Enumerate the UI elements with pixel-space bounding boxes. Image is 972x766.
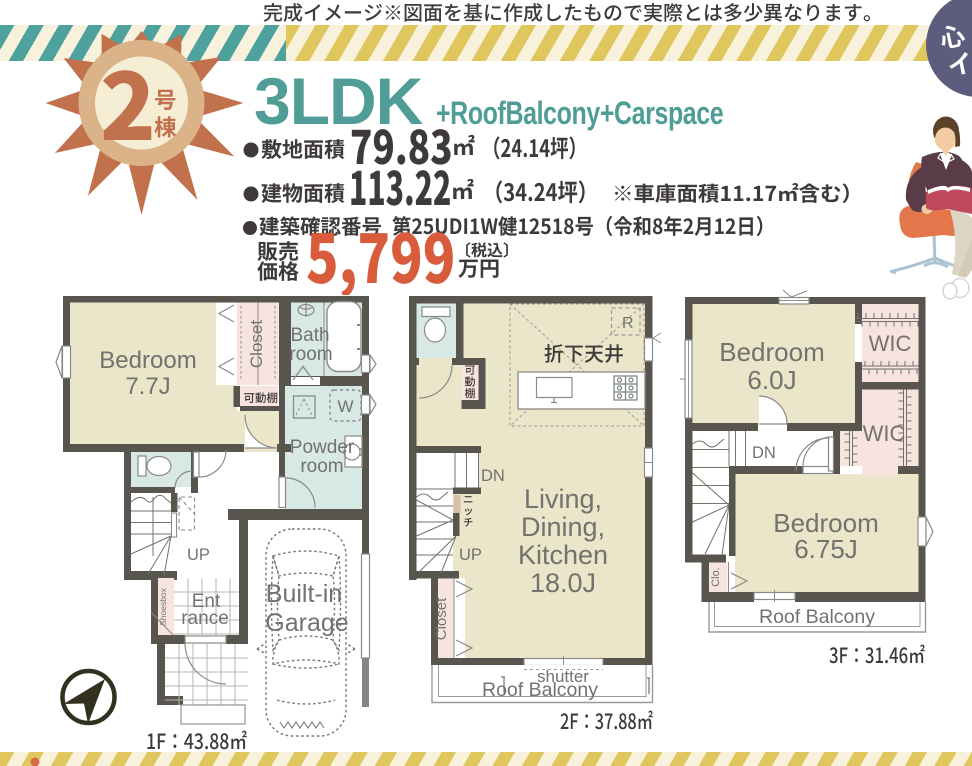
svg-text:6.75J: 6.75J: [794, 534, 858, 564]
svg-text:WIC: WIC: [869, 331, 912, 356]
svg-text:6.0J: 6.0J: [747, 365, 796, 395]
svg-text:DN: DN: [752, 444, 776, 462]
svg-text:Roof Balcony: Roof Balcony: [759, 606, 875, 628]
svg-text:WIC: WIC: [863, 421, 906, 446]
svg-text:Bedroom: Bedroom: [719, 337, 825, 367]
svg-text:Clo.: Clo.: [710, 567, 722, 587]
